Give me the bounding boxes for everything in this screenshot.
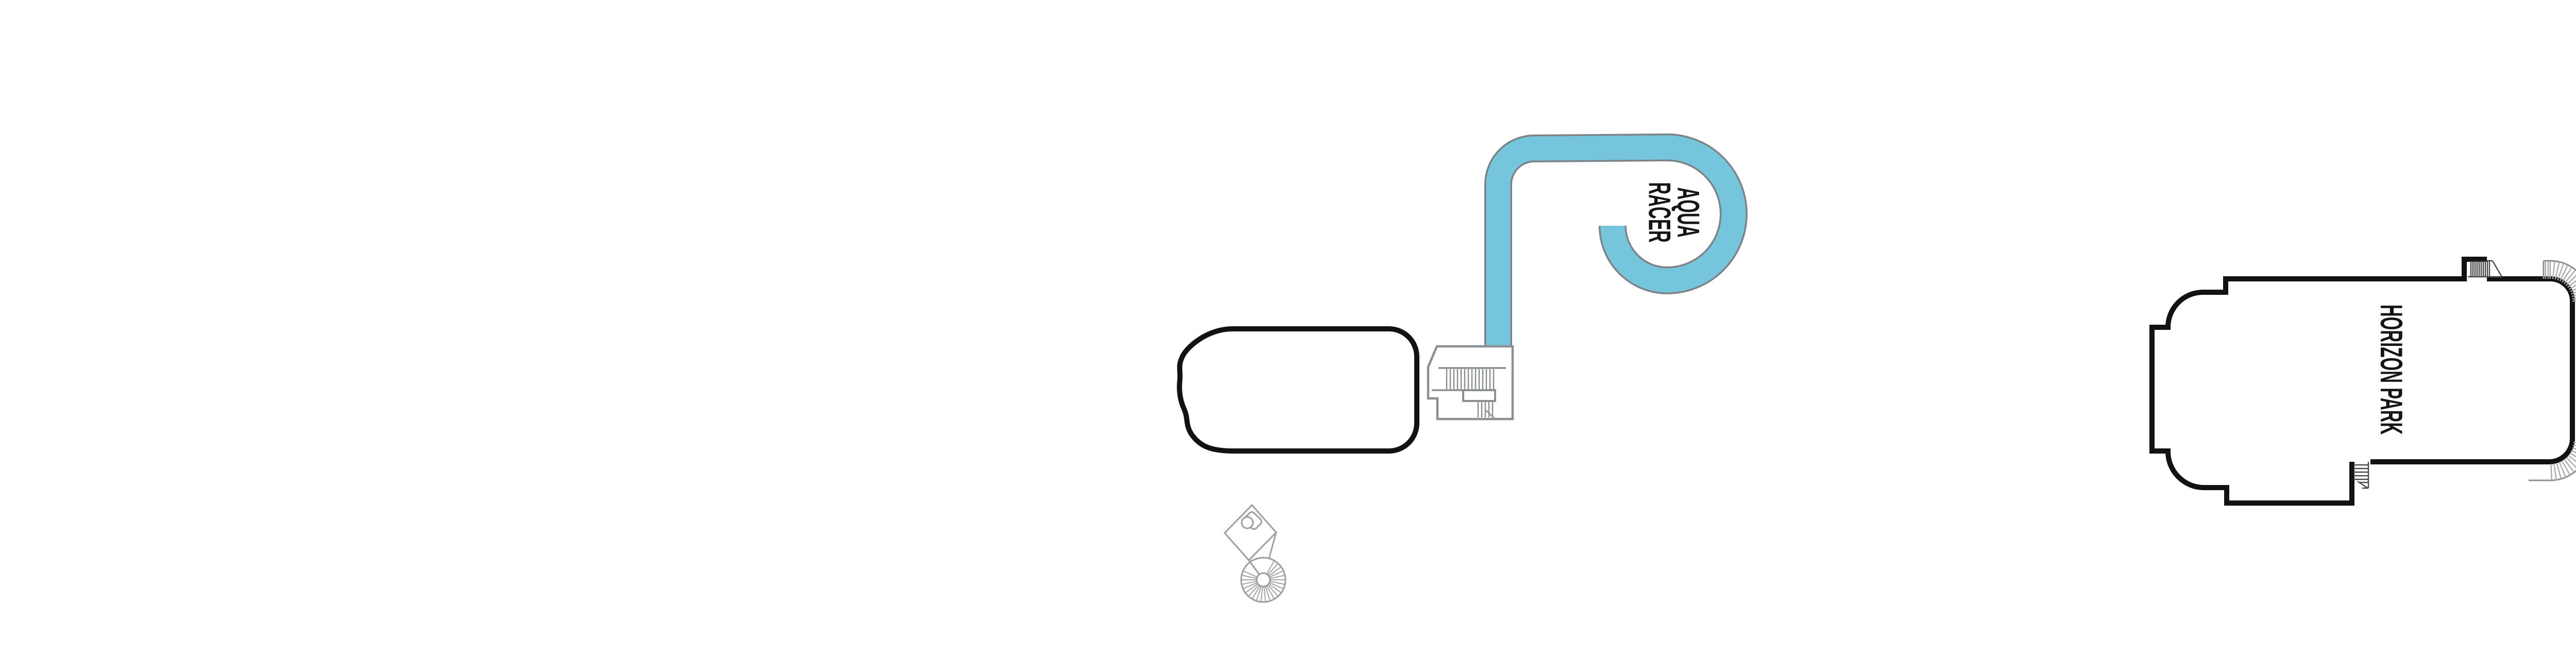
spiral-staircase-icon [1225,505,1285,602]
deck-plan-svg [0,0,2576,652]
slide-tube [1498,147,1734,346]
slide-tower [1428,346,1513,419]
deck-outline-left [2152,259,2487,503]
aqua-racer-slide [1498,147,1734,346]
deck-stairs-bottom [2353,462,2368,488]
deck-stairs-top [2468,261,2502,277]
stair-top-circle [1242,517,1253,528]
pool-outline [1179,329,1417,451]
horizon-park-label: HORIZON PARK [2376,305,2406,434]
horizon-park-deck [2152,259,2576,503]
slide-tower-outline [1428,346,1513,419]
cruise-deck-plan: AQUA RACER HORIZON PARK [0,0,2576,652]
aqua-racer-label-line2: RACER [1645,182,1673,242]
stair-center-circle [1257,573,1270,587]
pool-shape [1179,329,1417,451]
aqua-racer-label: AQUA RACER [1645,182,1703,242]
tower-landing-rect [1463,390,1495,401]
aqua-racer-label-line1: AQUA [1673,182,1702,242]
